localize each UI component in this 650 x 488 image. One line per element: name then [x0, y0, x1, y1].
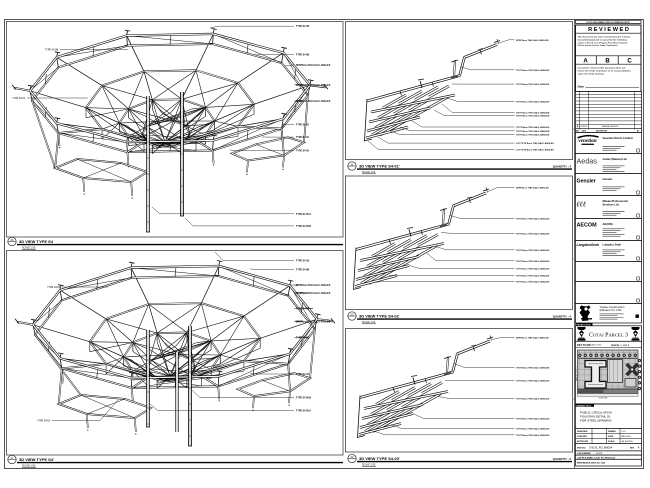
svg-text:Services Ltd.: Services Ltd. — [603, 202, 620, 206]
svg-text:79*79*4mm THK GALV. ANGLES: 79*79*4mm THK GALV. ANGLES — [516, 379, 550, 382]
svg-text:79*79*4mm THK GALV. ANGLES: 79*79*4mm THK GALV. ANGLES — [516, 267, 550, 270]
svg-text:Consultant review of this: Consultant review of this document does … — [578, 67, 626, 70]
svg-text:79*79*4mm THK GALV. ANGLES: 79*79*4mm THK GALV. ANGLES — [516, 427, 550, 430]
svg-text:SPSP5mm THK GALV. ANGLES: SPSP5mm THK GALV. ANGLES — [296, 292, 331, 295]
svg-text:SPSP5mm THK GALV. ANGLES: SPSP5mm THK GALV. ANGLES — [516, 39, 549, 42]
svg-text:This document has been reviewe: This document has been reviewed by the r… — [578, 36, 631, 39]
svg-text:79*79*4mm THK GALV. ANGLES: 79*79*4mm THK GALV. ANGLES — [516, 434, 550, 437]
svg-text:QUANTITY : 4: QUANTITY : 4 — [553, 315, 572, 319]
svg-text:05/10/10: 05/10/10 — [581, 126, 588, 128]
svg-text:TYPE S4-03: TYPE S4-03 — [296, 124, 309, 127]
svg-text:status referred to in Proj: status referred to in Project Procedure … — [578, 41, 629, 44]
svg-text:TYPE S4-0B: TYPE S4-0B — [296, 336, 309, 339]
svg-text:SPSP5mm THK GALV. ANGLES: SPSP5mm THK GALV. ANGLES — [296, 100, 331, 103]
svg-text:TYPE S4-04: TYPE S4-04 — [296, 136, 309, 139]
svg-text:DATE: DATE — [608, 435, 614, 438]
svg-text:79*79*4mm THK GALV. ANGLES: 79*79*4mm THK GALV. ANGLES — [516, 83, 550, 86]
svg-text:DESIGNED: DESIGNED — [577, 431, 588, 433]
svg-text:TYPE S4-02: TYPE S4-02 — [47, 287, 60, 289]
svg-text:relieve the Trade Contractor: relieve the Trade Contractor of its resp… — [578, 70, 632, 73]
svg-text:C: C — [627, 59, 632, 65]
svg-text:REFERENCE DWG No. N/A: REFERENCE DWG No. N/A — [577, 462, 605, 465]
svg-text:PARCEL 1, LOT 1: PARCEL 1, LOT 1 — [575, 367, 578, 381]
svg-text:A: A — [583, 59, 588, 65]
svg-text:79*79*4mm THK GALV. ANGLES: 79*79*4mm THK GALV. ANGLES — [516, 274, 550, 277]
svg-text:PARCEL 1, LOT 2: PARCEL 1, LOT 2 — [611, 344, 630, 347]
svg-text:TYPE S4-05.A: TYPE S4-05.A — [296, 213, 311, 216]
svg-text:79*79*4mm THK GALV. ANGLES: 79*79*4mm THK GALV. ANGLES — [516, 126, 550, 129]
svg-text:KEY PLAN: KEY PLAN — [577, 343, 590, 347]
svg-text:5.4 for action by the Tra: 5.4 for action by the Trade Contractor. — [578, 44, 619, 47]
svg-text:79*79*4mm THK GALV. ANGLES: 79*79*4mm THK GALV. ANGLES — [516, 100, 550, 103]
svg-text:QUANTITY : 4: QUANTITY : 4 — [553, 457, 572, 461]
svg-text:TYPE S4-04: TYPE S4-04 — [296, 373, 309, 376]
svg-text:AECOM: AECOM — [577, 222, 598, 228]
svg-text:LangdonSeah: LangdonSeah — [577, 243, 599, 247]
svg-text:TYPE S4-1B: TYPE S4-1B — [296, 260, 309, 263]
svg-text:79*79*4mm THK GALV. ANGLES: 79*79*4mm THK GALV. ANGLES — [516, 232, 550, 235]
svg-text:TYPE S4-05: TYPE S4-05 — [296, 150, 309, 153]
svg-text:B: B — [605, 59, 610, 65]
svg-text:79*79*4mm THK GALV. ANGLES: 79*79*4mm THK GALV. ANGLES — [516, 260, 550, 263]
svg-text:QUANTITY : 4: QUANTITY : 4 — [553, 165, 572, 169]
svg-text:Gensler: Gensler — [603, 177, 613, 181]
svg-text:L75 79*79*4mm THK GALV. ANGLES: L75 79*79*4mm THK GALV. ANGLES — [516, 142, 554, 145]
svg-text:SPSP5mm THK GALV. ANGLES: SPSP5mm THK GALV. ANGLES — [296, 64, 331, 67]
svg-text:ℓℓℓ: ℓℓℓ — [576, 200, 586, 209]
svg-text:TYPE S4-0B: TYPE S4-0B — [296, 268, 309, 271]
svg-text:SCALE 1:20: SCALE 1:20 — [362, 463, 376, 466]
svg-text:AS SHOWN: AS SHOWN — [622, 440, 633, 443]
svg-text:79*79*4mm THK GALV. ANGLES: 79*79*4mm THK GALV. ANGLES — [516, 417, 550, 420]
svg-text:REV: REV — [630, 447, 635, 449]
svg-text:TYPE S4-05.B: TYPE S4-05.B — [296, 225, 311, 228]
svg-text:DRAWING TITLE:: DRAWING TITLE: — [577, 404, 592, 407]
svg-text:TYPE S4-1B: TYPE S4-1B — [296, 25, 309, 28]
svg-text:MAY 2010: MAY 2010 — [622, 435, 632, 438]
svg-text:TYPE S4-03: TYPE S4-03 — [37, 421, 50, 423]
svg-text:SCALE 1:50: SCALE 1:50 — [22, 464, 36, 467]
svg-text:L75 79*79*4mm THK GALV. ANGLES: L75 79*79*4mm THK GALV. ANGLES — [516, 148, 554, 151]
svg-text:SPSP5mm THK GALV. ANGLES: SPSP5mm THK GALV. ANGLES — [296, 84, 331, 87]
svg-text:Consultant(s)(s) and is acc: Consultant(s)(s) and is accorded the fol… — [578, 38, 628, 41]
svg-text:SPSP5mm THK GALV. ANGLES: SPSP5mm THK GALV. ANGLES — [296, 284, 331, 287]
svg-text:AECOM: AECOM — [603, 222, 614, 226]
svg-text:SCALE 1:20: SCALE 1:20 — [362, 321, 376, 324]
svg-text:(Macau) CO. LTD.: (Macau) CO. LTD. — [600, 308, 623, 312]
svg-text:3-SUS_FD_8N004: 3-SUS_FD_8N004 — [589, 446, 613, 450]
svg-text:CHECKED: CHECKED — [577, 436, 587, 438]
svg-text:SPSP5mm THK GALV. ANGLES: SPSP5mm THK GALV. ANGLES — [516, 186, 549, 189]
svg-text:79*79*4mm THK GALV. ANGLES: 79*79*4mm THK GALV. ANGLES — [516, 249, 550, 252]
svg-text:Date :: Date : — [578, 84, 586, 88]
svg-text:LOO: LOO — [622, 431, 627, 433]
svg-text:TYPE S4-0B: TYPE S4-0B — [45, 50, 58, 52]
svg-text:79*79*4mm THK GALV. ANGLES: 79*79*4mm THK GALV. ANGLES — [516, 366, 550, 369]
svg-text:SCALE 1:1000: SCALE 1:1000 — [590, 344, 601, 347]
svg-text:3D VIEW TYPE S4: 3D VIEW TYPE S4 — [19, 239, 54, 244]
svg-text:Aedas (Macau) Ltd.: Aedas (Macau) Ltd. — [603, 157, 628, 161]
svg-text:Venetian Orient Limited: Venetian Orient Limited — [603, 136, 633, 140]
svg-text:Macau Professional: Macau Professional — [603, 199, 628, 203]
svg-text:TYPE S4-02: TYPE S4-02 — [12, 98, 25, 100]
svg-text:79*79*4mm THK GALV. ANGLES: 79*79*4mm THK GALV. ANGLES — [516, 111, 550, 114]
svg-text:FOR STEEL DRAWING: FOR STEEL DRAWING — [580, 419, 612, 423]
svg-text:SPSP5mm THK GALV. ANGLES: SPSP5mm THK GALV. ANGLES — [516, 336, 549, 339]
svg-text:APPROVED: APPROVED — [577, 440, 589, 443]
svg-text:3D VIEW TYPE S4-02: 3D VIEW TYPE S4-02 — [359, 314, 400, 319]
svg-text:79*79*4mm THK GALV. ANGLES: 79*79*4mm THK GALV. ANGLES — [516, 69, 550, 72]
svg-text:79*79*4mm THK GALV. ANGLES: 79*79*4mm THK GALV. ANGLES — [516, 134, 550, 137]
svg-text:Gensler: Gensler — [577, 178, 596, 184]
svg-text:79*79*4mm THK GALV. ANGLES: 79*79*4mm THK GALV. ANGLES — [516, 114, 550, 117]
svg-text:Aedas: Aedas — [577, 157, 598, 166]
svg-text:TYPE S4-05.B: TYPE S4-05.B — [296, 397, 311, 400]
svg-text:79*79*4mm THK GALV. ANGLES: 79*79*4mm THK GALV. ANGLES — [516, 217, 550, 220]
svg-text:SCALE 1:20: SCALE 1:20 — [362, 171, 376, 174]
svg-text:79*79*4mm THK GALV. ANGLES: 79*79*4mm THK GALV. ANGLES — [516, 397, 550, 400]
svg-text:79*79*4mm THK GALV. ANGLES: 79*79*4mm THK GALV. ANGLES — [516, 280, 550, 283]
svg-text:TYPE S4-0B: TYPE S4-0B — [296, 54, 309, 57]
svg-text:DWG NO.: DWG NO. — [577, 447, 586, 449]
svg-text:A: A — [638, 446, 640, 450]
svg-text:3D VIEW TYPE S4-03': 3D VIEW TYPE S4-03' — [359, 456, 400, 461]
svg-text:TYPE S4-02: TYPE S4-02 — [296, 308, 309, 311]
svg-text:DRAWN: DRAWN — [608, 430, 616, 433]
svg-text:CAD FILE NAME: 3-SUS_FD_8N004.: CAD FILE NAME: 3-SUS_FD_8N004.dwg — [577, 456, 616, 459]
svg-text:R E V I E W E D: R E V I E W E D — [588, 27, 629, 33]
svg-text:79*79*4mm THK GALV. ANGLES: 79*79*4mm THK GALV. ANGLES — [516, 130, 550, 133]
svg-text:SCALE 1:50: SCALE 1:50 — [22, 246, 36, 249]
svg-text:3D VIEW TYPE S4-01': 3D VIEW TYPE S4-01' — [359, 164, 400, 169]
svg-text:3D VIEW TYPE S4': 3D VIEW TYPE S4' — [19, 457, 54, 462]
svg-text:TYPE S4-05.A: TYPE S4-05.A — [296, 410, 311, 413]
svg-text:Langdon Seah: Langdon Seah — [603, 242, 622, 246]
svg-text:GENERAL REVISION: GENERAL REVISION — [602, 125, 619, 128]
svg-text:SCALE: SCALE — [608, 440, 615, 443]
svg-text:under the Trade Contract.: under the Trade Contract. — [578, 73, 606, 76]
svg-text:venetian: venetian — [578, 138, 596, 144]
svg-text:SPSP5mm THK GALV. ANGLES: SPSP5mm THK GALV. ANGLES — [296, 321, 331, 324]
